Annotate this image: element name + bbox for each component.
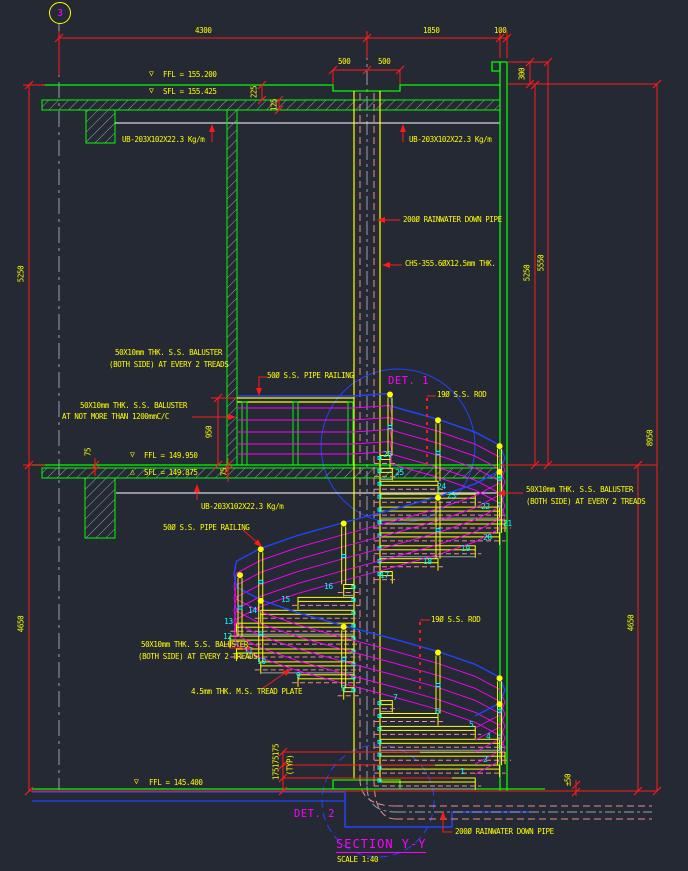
- dim-wall-thickness: 100: [494, 27, 506, 35]
- note-ub-roof-right: UB-203X102X22.3 Kg/m: [409, 136, 491, 144]
- tread-number-5: 5: [469, 721, 473, 729]
- tread-number-4: 4: [486, 733, 490, 741]
- tread-number-15: 15: [281, 596, 290, 604]
- dim-right-parapet-to-floor: 5550: [537, 255, 545, 271]
- level-mid-ffl: FFL = 149.950: [144, 452, 198, 460]
- dim-right-overall: 8950: [646, 430, 654, 446]
- note-baluster-top-2: (BOTH SIDE) AT EVERY 2 TREADS: [109, 361, 228, 369]
- dim-right-lower: 4650: [627, 615, 635, 631]
- note-pipe-railing-top: 50Ø S.S. PIPE RAILING: [267, 372, 353, 380]
- dim-mid-finish-right: 75: [220, 468, 228, 476]
- dim-riser-a: 175: [272, 744, 280, 756]
- dim-riser-note: (TYP): [286, 755, 294, 776]
- dim-curb-left: 500: [338, 58, 350, 66]
- tread-number-10: 10: [257, 658, 266, 666]
- tread-number-12: 12: [223, 633, 232, 641]
- dim-riser-b: 175: [272, 756, 280, 768]
- tread-number-16: 16: [324, 583, 333, 591]
- dim-roof-slab: 125: [270, 99, 278, 111]
- dim-left-upper: 5250: [17, 266, 25, 282]
- detail-1-label: DET. 1: [388, 376, 429, 387]
- grid-bubble: 3: [49, 2, 71, 24]
- note-rod-upper: 19Ø S.S. ROD: [437, 391, 486, 399]
- dim-mid-finish-left: 75: [84, 448, 92, 456]
- note-rainwater-pipe-bottom: 200Ø RAINWATER DOWN PIPE: [455, 828, 554, 836]
- dim-curb-right: 500: [378, 58, 390, 66]
- note-ub-roof-left: UB-203X102X22.3 Kg/m: [122, 136, 204, 144]
- dim-span-grid-to-pipe: 4300: [195, 27, 211, 35]
- dim-parapet-height: 300: [518, 68, 526, 80]
- dim-left-lower: 4650: [17, 616, 25, 632]
- dim-riser-c: 175: [272, 768, 280, 780]
- note-baluster-right-2: (BOTH SIDE) AT EVERY 2 TREADS: [526, 498, 645, 506]
- note-baluster-top-1: 50X10mm THK. S.S. BALUSTER: [115, 349, 222, 357]
- tread-number-8: 8: [341, 685, 345, 693]
- note-pipe-railing-mid: 50Ø S.S. PIPE RAILING: [163, 524, 249, 532]
- level-symbol-mid-sfl: △: [130, 468, 134, 476]
- note-ub-mid: UB-203X102X22.3 Kg/m: [201, 503, 283, 511]
- tread-number-3: 3: [497, 745, 501, 753]
- level-symbol-mid-ffl: ▽: [130, 451, 134, 459]
- tread-number-7: 7: [393, 694, 397, 702]
- level-ground-ffl: FFL = 145.400: [149, 779, 203, 787]
- note-baluster-lower-2: (BOTH SIDE) AT EVERY 2 TREADS: [138, 653, 257, 661]
- dim-span-pipe-to-wall: 1850: [423, 27, 439, 35]
- level-symbol-roof-ffl: ▽: [149, 70, 153, 78]
- tread-number-18: 18: [423, 558, 432, 566]
- tread-number-26: 26: [383, 451, 392, 459]
- tread-number-6: 6: [435, 708, 439, 716]
- note-baluster-spacing-2: AT NOT MORE THAN 1200mmC/C: [62, 413, 169, 421]
- tread-number-19: 19: [461, 545, 470, 553]
- dim-roof-finish: 225: [250, 86, 258, 98]
- tread-number-24: 24: [437, 483, 446, 491]
- section-title: SECTION Y-Y: [336, 838, 426, 853]
- note-rainwater-pipe-top: 200Ø RAINWATER DOWN PIPE: [403, 216, 502, 224]
- tread-number-22: 22: [481, 503, 490, 511]
- level-symbol-roof-sfl: ▽: [149, 87, 153, 95]
- tread-number-14: 14: [248, 607, 257, 615]
- tread-number-21: 21: [503, 520, 512, 528]
- cad-linework: [0, 0, 688, 871]
- note-baluster-right-1: 50X10mm THK. S.S. BALUSTER: [526, 486, 633, 494]
- grid-bubble-label: 3: [57, 8, 63, 19]
- tread-number-11: 11: [244, 647, 253, 655]
- cad-drawing-stage: 3 4300 1850 100 500 500 300 225 125 ▽ FF…: [0, 0, 688, 871]
- tread-number-17: 17: [380, 572, 389, 580]
- note-baluster-spacing-1: 50X10mm THK. S.S. BALUSTER: [80, 402, 187, 410]
- tread-number-2: 2: [483, 756, 487, 764]
- level-mid-sfl: SFL = 149.875: [144, 469, 198, 477]
- level-roof-ffl: FFL = 155.200: [163, 71, 217, 79]
- detail-2-label: DET. 2: [294, 809, 335, 820]
- tread-number-13: 13: [224, 618, 233, 626]
- dim-balustrade-height: 950: [205, 426, 213, 438]
- tread-number-25: 25: [395, 469, 404, 477]
- tread-number-20: 20: [483, 534, 492, 542]
- dim-ground-tolerance: ±50: [564, 774, 572, 786]
- note-rod-lower: 19Ø S.S. ROD: [431, 616, 480, 624]
- tread-number-23: 23: [447, 492, 456, 500]
- tread-number-9: 9: [296, 672, 300, 680]
- level-symbol-ground-ffl: ▽: [134, 778, 138, 786]
- drawing-scale: SCALE 1:40: [337, 856, 378, 864]
- note-tread-plate: 4.5mm THK. M.S. TREAD PLATE: [191, 688, 302, 696]
- level-roof-sfl: SFL = 155.425: [163, 88, 217, 96]
- dim-right-floor-to-floor: 5250: [523, 265, 531, 281]
- note-baluster-lower-1: 50X10mm THK. S.S. BALUSTER: [141, 641, 248, 649]
- tread-number-1: 1: [460, 768, 464, 776]
- note-chs-column: CHS-355.6ØX12.5mm THK.: [405, 260, 496, 268]
